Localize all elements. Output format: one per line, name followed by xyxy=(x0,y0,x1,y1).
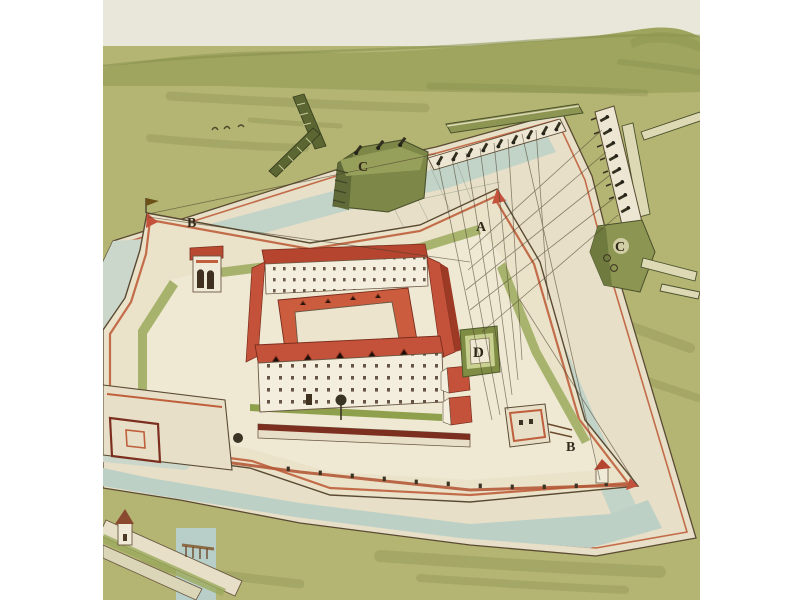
label-battery-c-east: C xyxy=(615,240,625,255)
fortress-watercolor: A B B C C D xyxy=(0,0,800,600)
west-gatehouse xyxy=(190,246,223,292)
label-cavalier-d: D xyxy=(473,345,484,361)
dark-figure xyxy=(233,433,243,443)
label-bastion-b-southeast: B xyxy=(566,440,575,455)
label-battery-c-north: C xyxy=(358,160,368,175)
label-bastion-b-west: B xyxy=(187,216,196,231)
label-bastion-a: A xyxy=(476,220,487,235)
south-facade-windows xyxy=(258,353,444,412)
manuscript-page: A B B C C D xyxy=(0,0,800,600)
citadel-door xyxy=(306,394,312,405)
